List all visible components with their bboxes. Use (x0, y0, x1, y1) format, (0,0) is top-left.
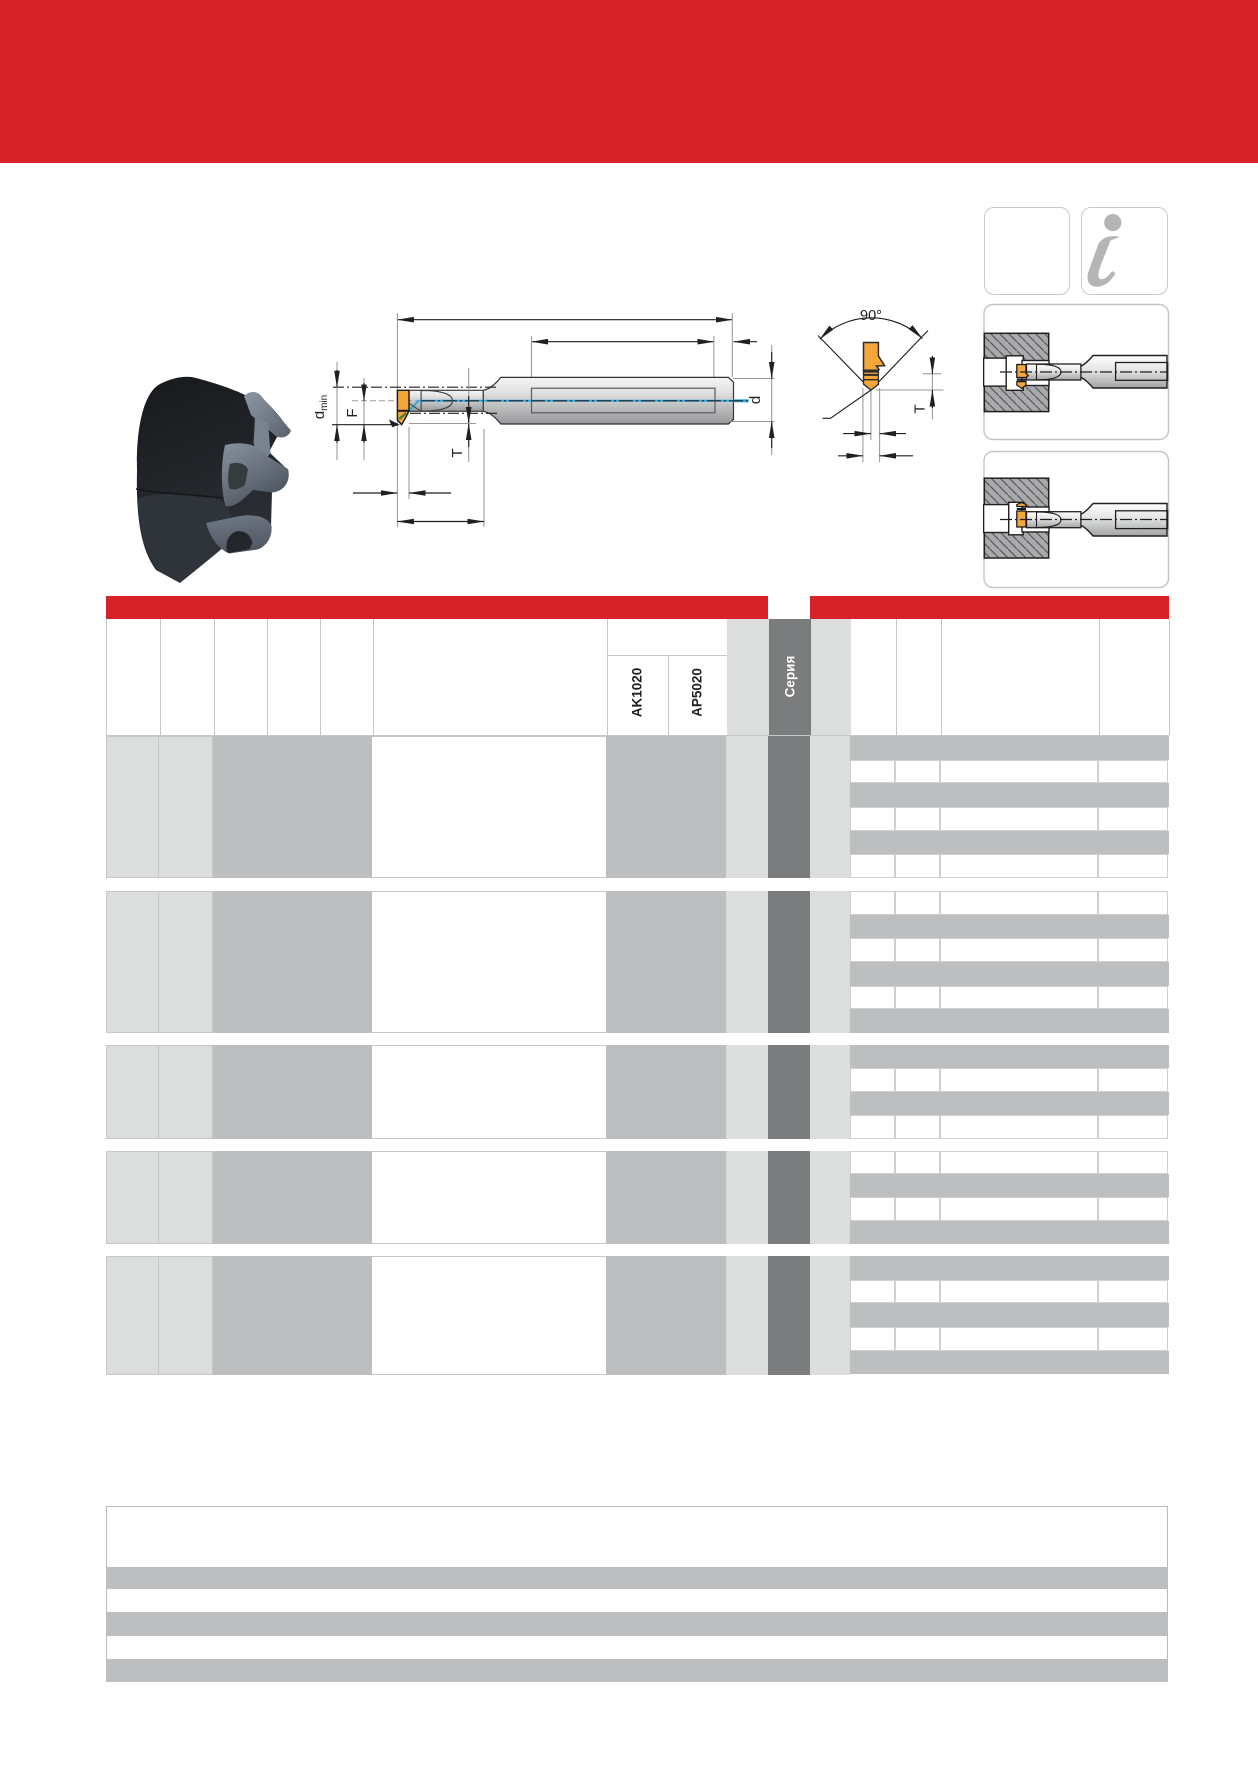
svg-text:T: T (911, 404, 928, 413)
svg-text:90°: 90° (860, 308, 882, 324)
svg-text:F: F (344, 408, 361, 417)
svg-text:T: T (449, 448, 466, 457)
svg-text:d: d (747, 396, 764, 404)
svg-text:dmin: dmin (315, 395, 330, 419)
